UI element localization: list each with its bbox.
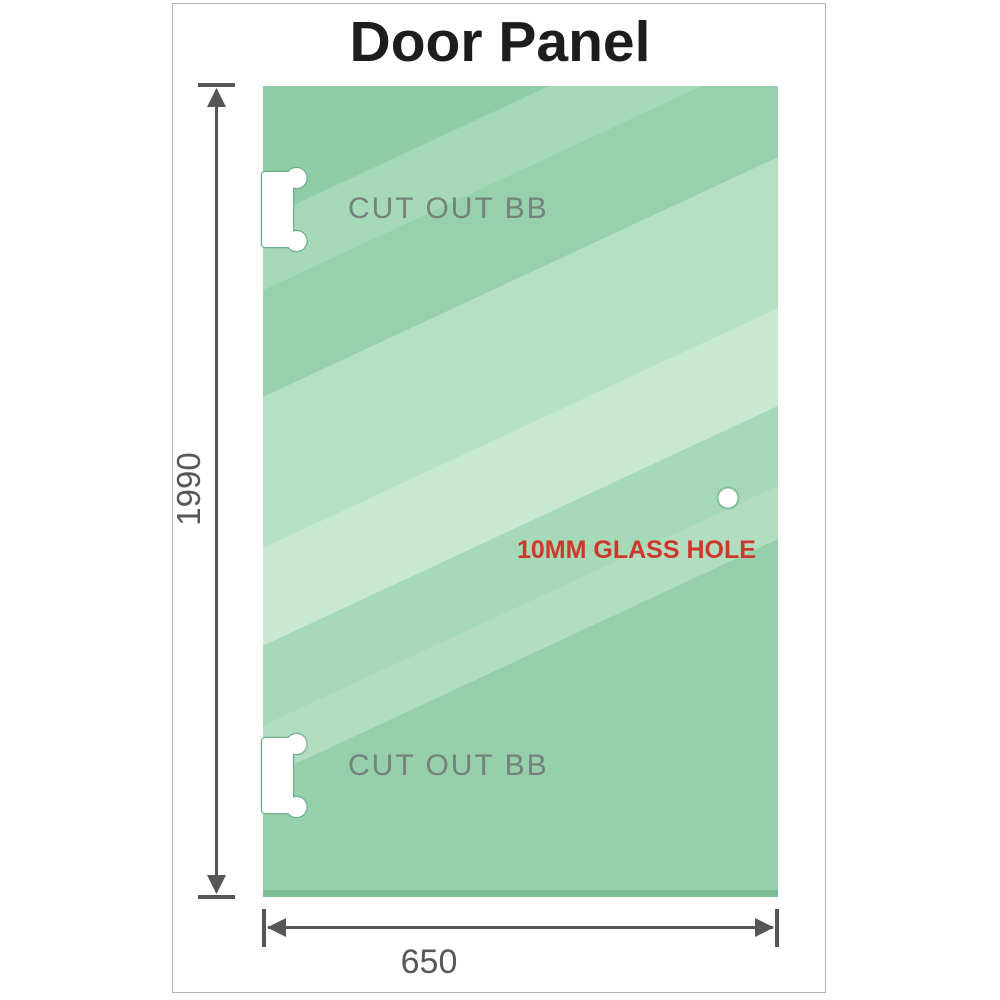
width-dim-line <box>268 926 773 929</box>
arrow-left-icon <box>267 918 286 937</box>
glass-hole-label: 10MM GLASS HOLE <box>517 536 756 565</box>
width-dimension-label: 650 <box>369 943 489 982</box>
arrow-right-icon <box>755 918 774 937</box>
diagram-canvas: Door Panel 1990 650 CUT OUT BB CUT OUT B… <box>0 0 1000 1000</box>
cutout-bottom-label: CUT OUT BB <box>348 749 549 783</box>
height-dim-line <box>215 90 218 892</box>
width-dim-left-cap <box>262 909 266 947</box>
arrow-down-icon <box>207 875 226 894</box>
height-dim-bottom-cap <box>198 895 235 899</box>
cutout-top-label: CUT OUT BB <box>348 192 549 226</box>
page-title: Door Panel <box>172 9 828 75</box>
width-dim-right-cap <box>775 909 779 947</box>
height-dim-top-cap <box>198 83 235 87</box>
glass-hole-icon <box>718 488 739 509</box>
arrow-up-icon <box>207 88 226 107</box>
door-panel-drawing <box>0 0 1000 1000</box>
width-dimension <box>262 909 779 947</box>
glass-panel-bottom-edge <box>263 890 778 897</box>
height-dimension-label: 1990 <box>169 423 209 555</box>
